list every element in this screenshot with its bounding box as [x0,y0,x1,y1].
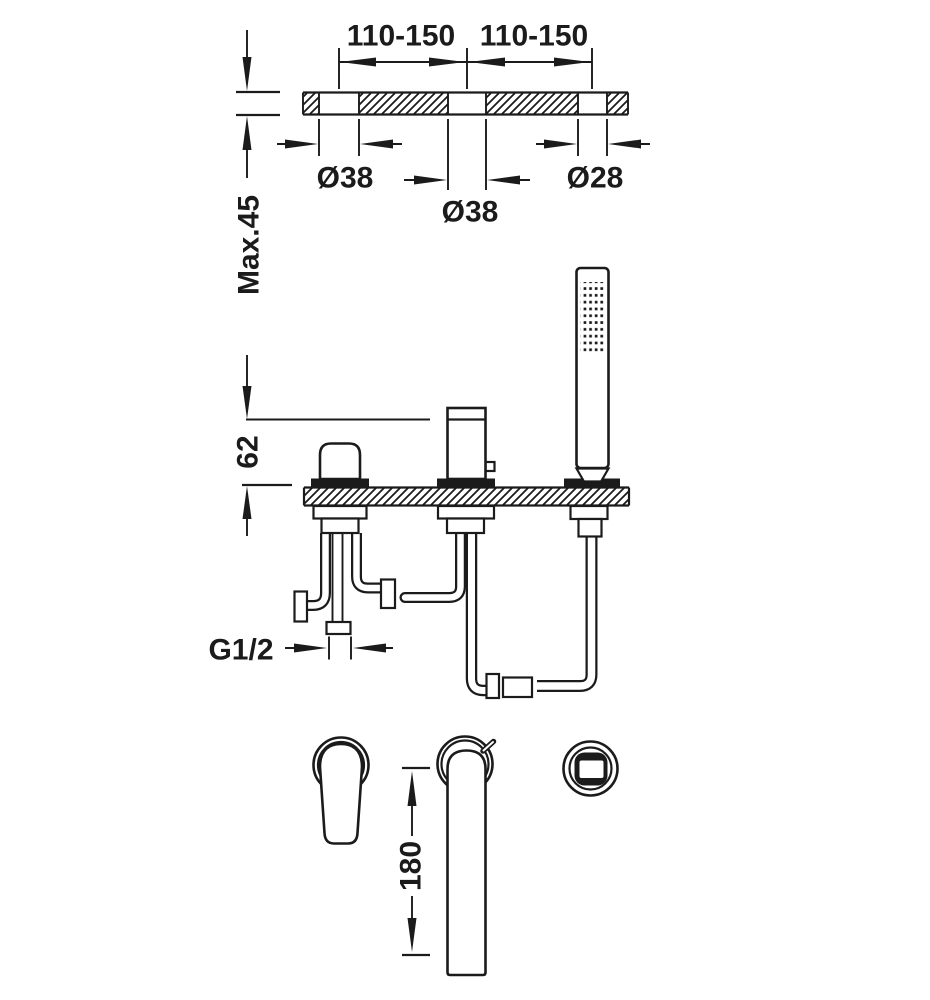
drawing-canvas: 110-150 110-150 Ø38 Ø38 Ø28 Max.45 62 [0,0,930,1000]
label-max-deck-thickness: Max.45 [233,195,266,295]
label-hole-spacing-left: 110-150 [347,20,455,53]
deck-cross-section [303,93,628,115]
handle-knob [320,444,360,480]
label-hole-spacing-right: 110-150 [480,20,588,53]
mounting-deck [304,488,629,506]
handshower-front-view [537,268,620,686]
spout-aerator-stub [486,462,495,471]
dim-max-deck-thickness: Max.45 [233,30,281,295]
label-connection-thread: G1/2 [208,634,273,667]
label-spout-height: 62 [232,435,265,468]
spout-front-view [405,408,532,698]
shower-holder-top-view [564,742,618,796]
handle-top-view [314,738,369,844]
label-hole-diameter-left: Ø38 [317,162,374,195]
label-hole-diameter-right: Ø28 [567,162,624,195]
spout-body-top-view [448,751,486,976]
handle-front-view [295,444,396,635]
holder-square-hole [580,761,604,779]
label-hole-diameter-center: Ø38 [442,196,499,229]
technical-drawing: 110-150 110-150 Ø38 Ø38 Ø28 Max.45 62 [0,0,930,1000]
dim-hole-diameters: Ø38 Ø38 Ø28 [277,119,650,229]
handshower-spray-face [581,282,605,355]
spout-top-view [438,737,494,976]
dim-spout-reach: 180 [395,768,431,955]
handle-lever [320,744,362,844]
dim-thread: G1/2 [208,634,393,667]
label-spout-reach: 180 [395,841,428,891]
dim-hole-spacing: 110-150 110-150 [339,20,592,90]
